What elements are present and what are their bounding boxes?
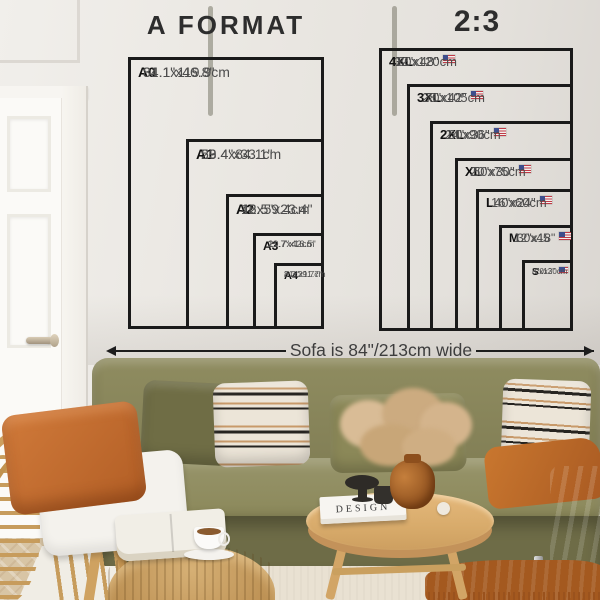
sofa-width-note: Sofa is 84"/213cm wide [288, 340, 474, 361]
coffee-cup [194, 527, 224, 549]
size-cm: 59.4x84.1cm [201, 146, 281, 162]
deco-ball [437, 502, 450, 515]
measure-line [114, 350, 286, 352]
pedestal-bowl [352, 497, 373, 502]
wall-molding [77, 0, 80, 63]
size-cm: 42x59.4cm [241, 201, 309, 217]
size-cm: 50x75cm [470, 165, 526, 180]
size-rect-a4: A48.3"x11.7"21x29.7cm [274, 263, 324, 329]
size-cm: 21x29.7cm [284, 270, 326, 280]
door-handle-icon [26, 337, 53, 344]
size-cm: 70x105cm [422, 91, 485, 106]
wall-molding [0, 60, 80, 63]
size-cm: 84.1x119.9cm [143, 64, 230, 80]
measure-line [476, 350, 594, 352]
size-cm: 40x60cm [491, 196, 547, 211]
saucer [184, 549, 234, 560]
size-cm: 80x120cm [394, 55, 457, 70]
amber-glass-vase [390, 460, 435, 509]
door-panel [7, 116, 51, 192]
size-cm: 20x30cm [532, 267, 567, 276]
a-format-chart-title: A FORMAT [118, 10, 334, 41]
rust-pillow [0, 400, 147, 516]
striped-pillow-left [213, 380, 311, 467]
us-flag-icon [559, 232, 571, 240]
throw-fringe [428, 592, 600, 600]
size-rect-s: S8"x12"20x30cm [522, 260, 573, 331]
right-arrowhead-icon [584, 346, 594, 356]
size-cm: 60x90cm [445, 128, 501, 143]
two-three-chart-title: 2:3 [381, 5, 573, 39]
door-panel [7, 214, 51, 348]
size-cm: 29.7x42cm [268, 240, 314, 251]
poster-size-guide-image: DESIGN A FORMAT A031.1"x46.8"84.1x119.9c… [0, 0, 600, 600]
size-cm: 30x45 [514, 232, 550, 246]
